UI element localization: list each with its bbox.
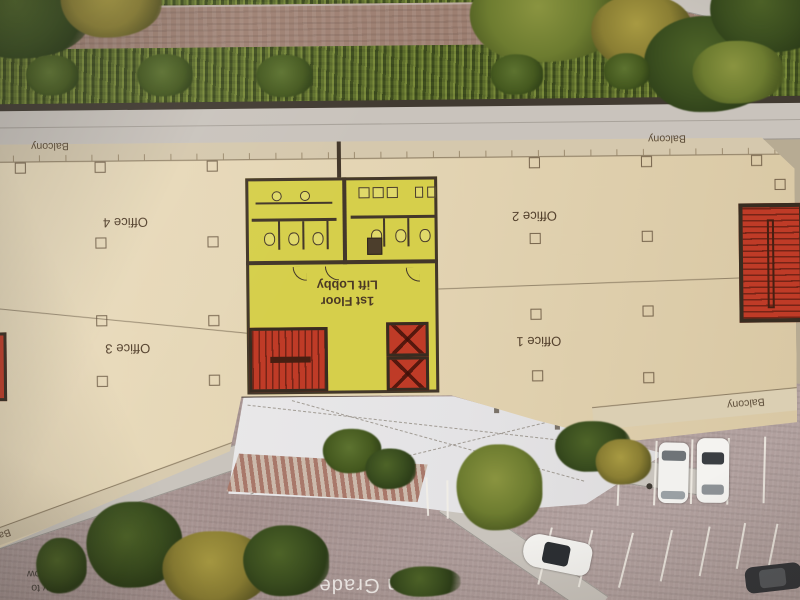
column-marker: [774, 179, 785, 190]
column-marker: [530, 309, 541, 320]
urinal-icon: [415, 187, 423, 198]
column-marker: [15, 163, 26, 174]
car-roof: [759, 567, 787, 588]
column-marker: [209, 375, 220, 386]
hedge-patch: [390, 566, 461, 597]
column-marker: [532, 370, 543, 381]
core-north-wall-stub: [337, 141, 341, 179]
office-1-label: Office 1: [498, 333, 579, 349]
balcony-label-top-left: Balcony: [20, 140, 81, 153]
sink-icon: [387, 187, 398, 198]
column-marker: [95, 162, 106, 173]
column-marker: [643, 372, 654, 383]
lift-shaft: [386, 356, 429, 391]
column-marker: [207, 236, 218, 247]
toilet-icon: [288, 232, 299, 245]
column-marker: [529, 157, 540, 168]
column-marker: [642, 231, 653, 242]
column-marker: [208, 315, 219, 326]
stair-handrail-icon: [767, 219, 775, 308]
bush: [595, 439, 651, 485]
stall-divider: [302, 221, 304, 249]
janitor-closet: [367, 238, 382, 255]
bush: [137, 54, 193, 97]
column-marker: [751, 155, 762, 166]
floor-plan-photo: Balcony Balcony: [0, 0, 800, 600]
sink-icon: [300, 191, 310, 201]
lobby-label-line1: 1st Floor: [321, 294, 374, 309]
urinal-icon: [427, 187, 435, 198]
stall-divider: [383, 218, 385, 246]
office-2-label: Office 2: [494, 208, 575, 224]
balcony-strip-southeast: Balcony: [592, 386, 800, 430]
lift-shaft: [386, 322, 429, 357]
bush: [490, 54, 543, 95]
stairwell-west-edge: [0, 332, 7, 401]
stall-divider: [326, 221, 328, 249]
car-white-suv: [658, 442, 690, 503]
office-3-label: Office 3: [87, 341, 168, 357]
column-marker: [96, 315, 107, 326]
stall-divider: [407, 218, 409, 246]
tree: [692, 40, 784, 104]
stairwell-west: [249, 327, 328, 392]
bush: [256, 54, 313, 97]
column-marker: [530, 233, 541, 244]
column-marker: [642, 305, 653, 316]
column-marker: [95, 237, 106, 248]
balcony-label-top-right: Balcony: [637, 132, 698, 145]
car-sunroof: [702, 452, 724, 464]
balcony-label-bottom-right: Balcony: [713, 394, 779, 412]
column-marker: [97, 376, 108, 387]
car-cockpit: [541, 541, 571, 567]
stair-handrail-icon: [270, 356, 310, 362]
bush: [365, 448, 416, 489]
plan-scene: Balcony Balcony: [0, 0, 800, 600]
sink-icon: [272, 191, 282, 201]
bush: [603, 53, 650, 90]
bush: [36, 538, 87, 594]
stairwell-east-edge: [738, 203, 800, 323]
car-rear-glass: [702, 485, 724, 495]
tree: [456, 444, 543, 531]
stall-divider: [278, 221, 280, 249]
sink-icon: [358, 187, 369, 198]
car-rear-glass: [661, 491, 685, 500]
toilet-icon: [395, 229, 406, 242]
car-windshield: [662, 450, 686, 461]
column-marker: [207, 161, 218, 172]
tree: [243, 525, 330, 597]
column-marker: [641, 156, 652, 167]
bollard-dot: [646, 483, 652, 489]
toilet-icon: [419, 229, 430, 242]
sink-icon: [373, 187, 384, 198]
car-white-sedan: [696, 438, 729, 503]
toilet-icon: [264, 233, 275, 246]
lobby-label-line2: Lift Lobby: [317, 277, 378, 292]
parking-stall-line: [446, 480, 448, 518]
bush: [26, 55, 79, 96]
toilet-icon: [312, 232, 323, 245]
office-4-label: Office 4: [85, 215, 166, 231]
lift-lobby-label: 1st Floor Lift Lobby: [297, 276, 398, 310]
